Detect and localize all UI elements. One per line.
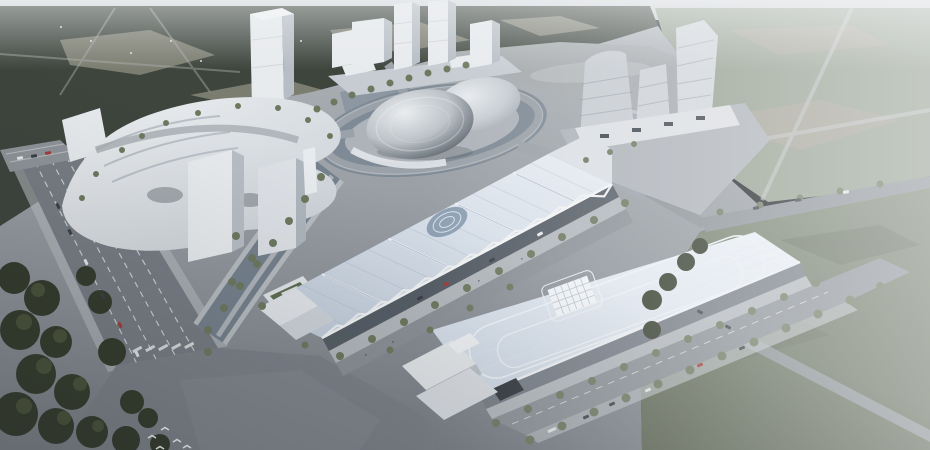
vignette-bottom-left	[0, 0, 930, 450]
aerial-rendering-figure	[0, 0, 930, 450]
aerial-rendering-canvas	[0, 0, 930, 450]
